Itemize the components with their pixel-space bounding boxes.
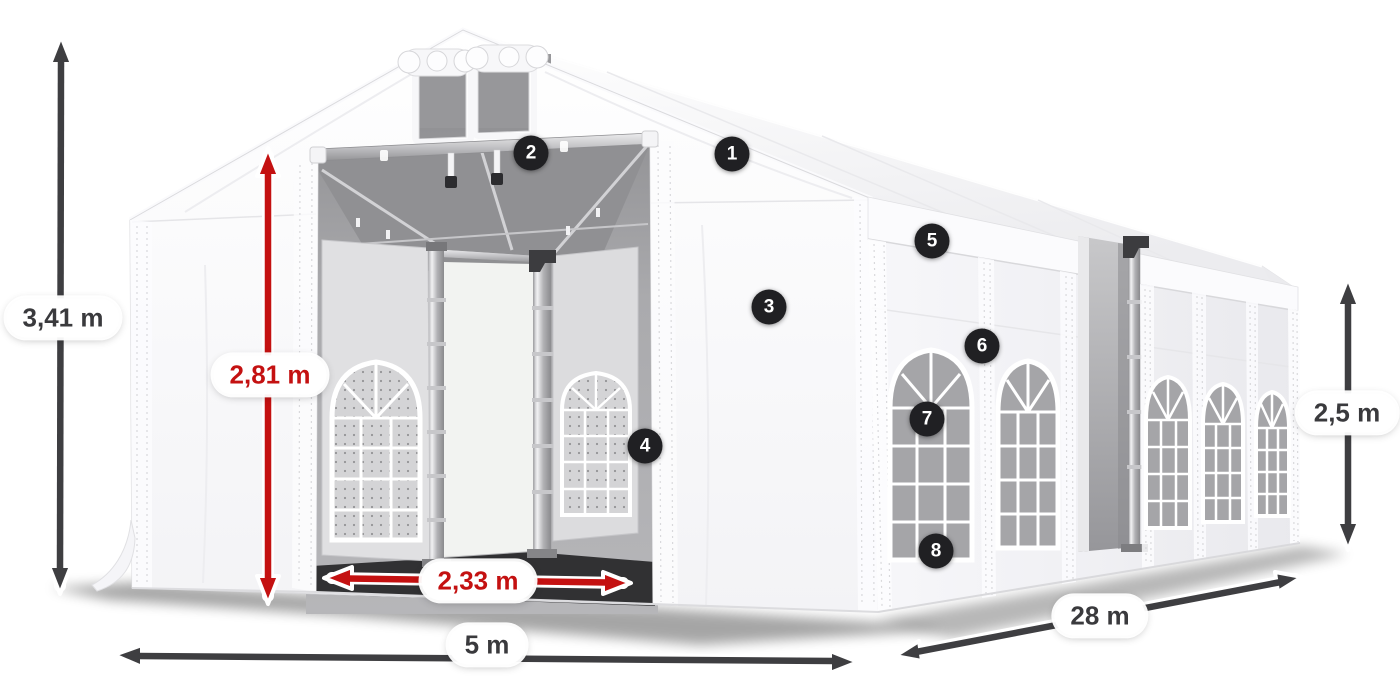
callout-1[interactable]: 1 <box>715 137 750 172</box>
callout-2[interactable]: 2 <box>514 136 549 171</box>
callout-3[interactable]: 3 <box>752 290 787 325</box>
dimension-label-total-height: 3,41 m <box>7 298 120 337</box>
side-door-opening <box>1078 236 1149 552</box>
callout-5[interactable]: 5 <box>915 224 950 259</box>
callout-8[interactable]: 8 <box>919 534 954 569</box>
dimension-label-length: 28 m <box>1054 596 1145 635</box>
dimension-label-front-width: 5 m <box>449 625 526 664</box>
left-wall-skirt <box>92 520 135 591</box>
tent-dimension-diagram: 3,41 m 2,81 m 2,33 m 5 m 28 m 2,5 m 1 2 … <box>0 0 1400 700</box>
dimension-label-side-wall-height: 2,5 m <box>1298 393 1397 432</box>
dimension-label-entrance-width: 2,33 m <box>422 561 535 600</box>
callout-6[interactable]: 6 <box>965 329 1000 364</box>
through-passage <box>444 262 533 557</box>
inner-door-right <box>553 247 638 541</box>
dimension-label-entrance-height: 2,81 m <box>214 355 327 394</box>
entrance-right-column <box>650 140 678 606</box>
callout-7[interactable]: 7 <box>910 402 945 437</box>
inner-door-left <box>322 240 430 561</box>
callout-4[interactable]: 4 <box>628 429 663 464</box>
tent-illustration <box>0 0 1400 700</box>
